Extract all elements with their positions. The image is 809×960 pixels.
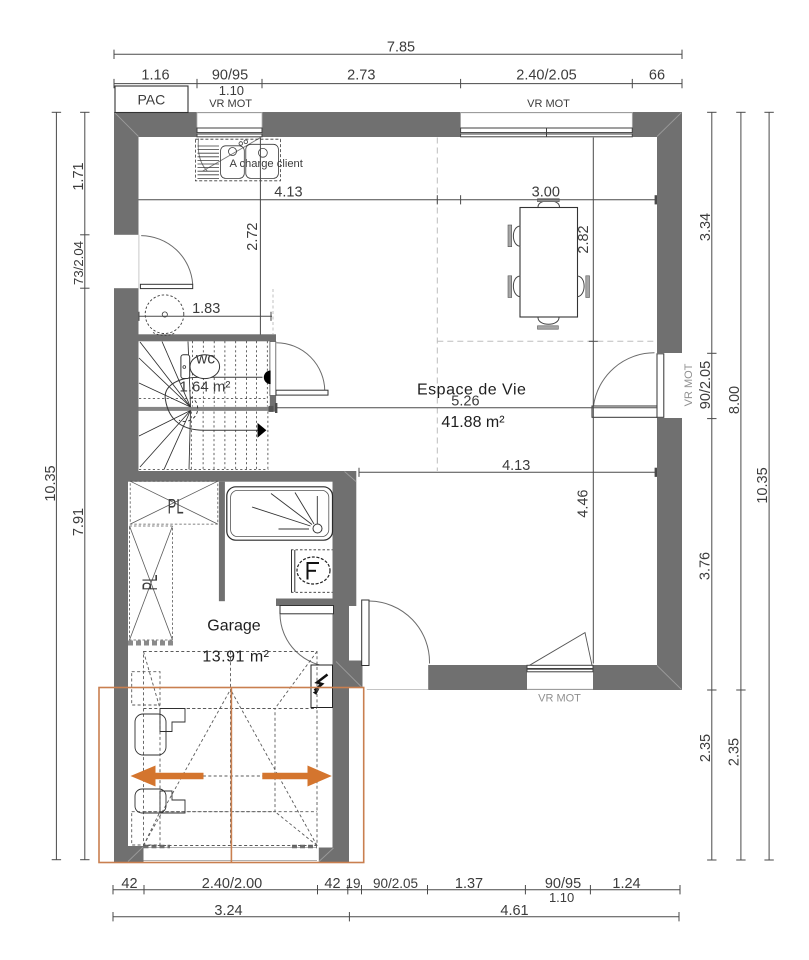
svg-text:VR MOT: VR MOT xyxy=(527,98,570,110)
svg-text:66: 66 xyxy=(649,68,665,84)
svg-text:42: 42 xyxy=(324,876,340,892)
svg-text:1.83: 1.83 xyxy=(192,301,220,317)
svg-text:1.10: 1.10 xyxy=(219,83,244,98)
svg-text:PL: PL xyxy=(168,494,184,518)
svg-text:2.82: 2.82 xyxy=(576,225,592,253)
svg-text:5.26: 5.26 xyxy=(451,393,479,409)
svg-text:wc: wc xyxy=(195,351,215,368)
svg-text:1.37: 1.37 xyxy=(455,876,483,892)
svg-text:4.46: 4.46 xyxy=(576,489,592,517)
svg-text:3.24: 3.24 xyxy=(214,903,242,919)
svg-text:Garage: Garage xyxy=(207,618,260,635)
svg-text:7.91: 7.91 xyxy=(71,508,87,536)
svg-text:7.85: 7.85 xyxy=(387,40,415,56)
svg-text:3.00: 3.00 xyxy=(532,184,560,200)
svg-text:1.10: 1.10 xyxy=(549,890,574,905)
svg-text:VR MOT: VR MOT xyxy=(683,363,695,406)
svg-text:8.00: 8.00 xyxy=(727,386,743,414)
svg-text:1.16: 1.16 xyxy=(141,68,169,84)
svg-text:3.34: 3.34 xyxy=(698,213,714,241)
svg-text:VR MOT: VR MOT xyxy=(538,693,581,705)
svg-text:90/95: 90/95 xyxy=(212,68,248,84)
svg-text:42: 42 xyxy=(121,876,137,892)
svg-text:2.73: 2.73 xyxy=(347,68,375,84)
svg-text:13.91 m²: 13.91 m² xyxy=(202,649,269,666)
svg-text:10.35: 10.35 xyxy=(755,467,771,503)
svg-text:A charge client: A charge client xyxy=(230,158,304,170)
svg-text:1.24: 1.24 xyxy=(612,876,640,892)
svg-text:3.76: 3.76 xyxy=(697,552,713,580)
svg-text:73/2.04: 73/2.04 xyxy=(71,241,86,285)
svg-text:2.40/2.00: 2.40/2.00 xyxy=(202,876,262,892)
svg-text:PAC: PAC xyxy=(138,92,166,108)
svg-text:1.64 m²: 1.64 m² xyxy=(180,379,231,396)
svg-text:2.35: 2.35 xyxy=(698,734,714,762)
svg-text:1.71: 1.71 xyxy=(71,162,87,190)
svg-text:PL: PL xyxy=(138,574,162,590)
svg-text:41.88 m²: 41.88 m² xyxy=(441,414,505,431)
svg-text:10.35: 10.35 xyxy=(43,465,59,501)
svg-text:4.13: 4.13 xyxy=(502,458,530,474)
svg-text:90/2.05: 90/2.05 xyxy=(373,876,418,891)
svg-text:VR MOT: VR MOT xyxy=(209,98,252,110)
svg-text:2.40/2.05: 2.40/2.05 xyxy=(516,68,576,84)
svg-text:4.13: 4.13 xyxy=(274,184,302,200)
svg-text:2.35: 2.35 xyxy=(726,738,742,766)
svg-text:19: 19 xyxy=(345,876,360,891)
svg-text:4.61: 4.61 xyxy=(500,903,528,919)
svg-text:90/2.05: 90/2.05 xyxy=(698,361,714,409)
svg-text:2.72: 2.72 xyxy=(245,222,261,250)
